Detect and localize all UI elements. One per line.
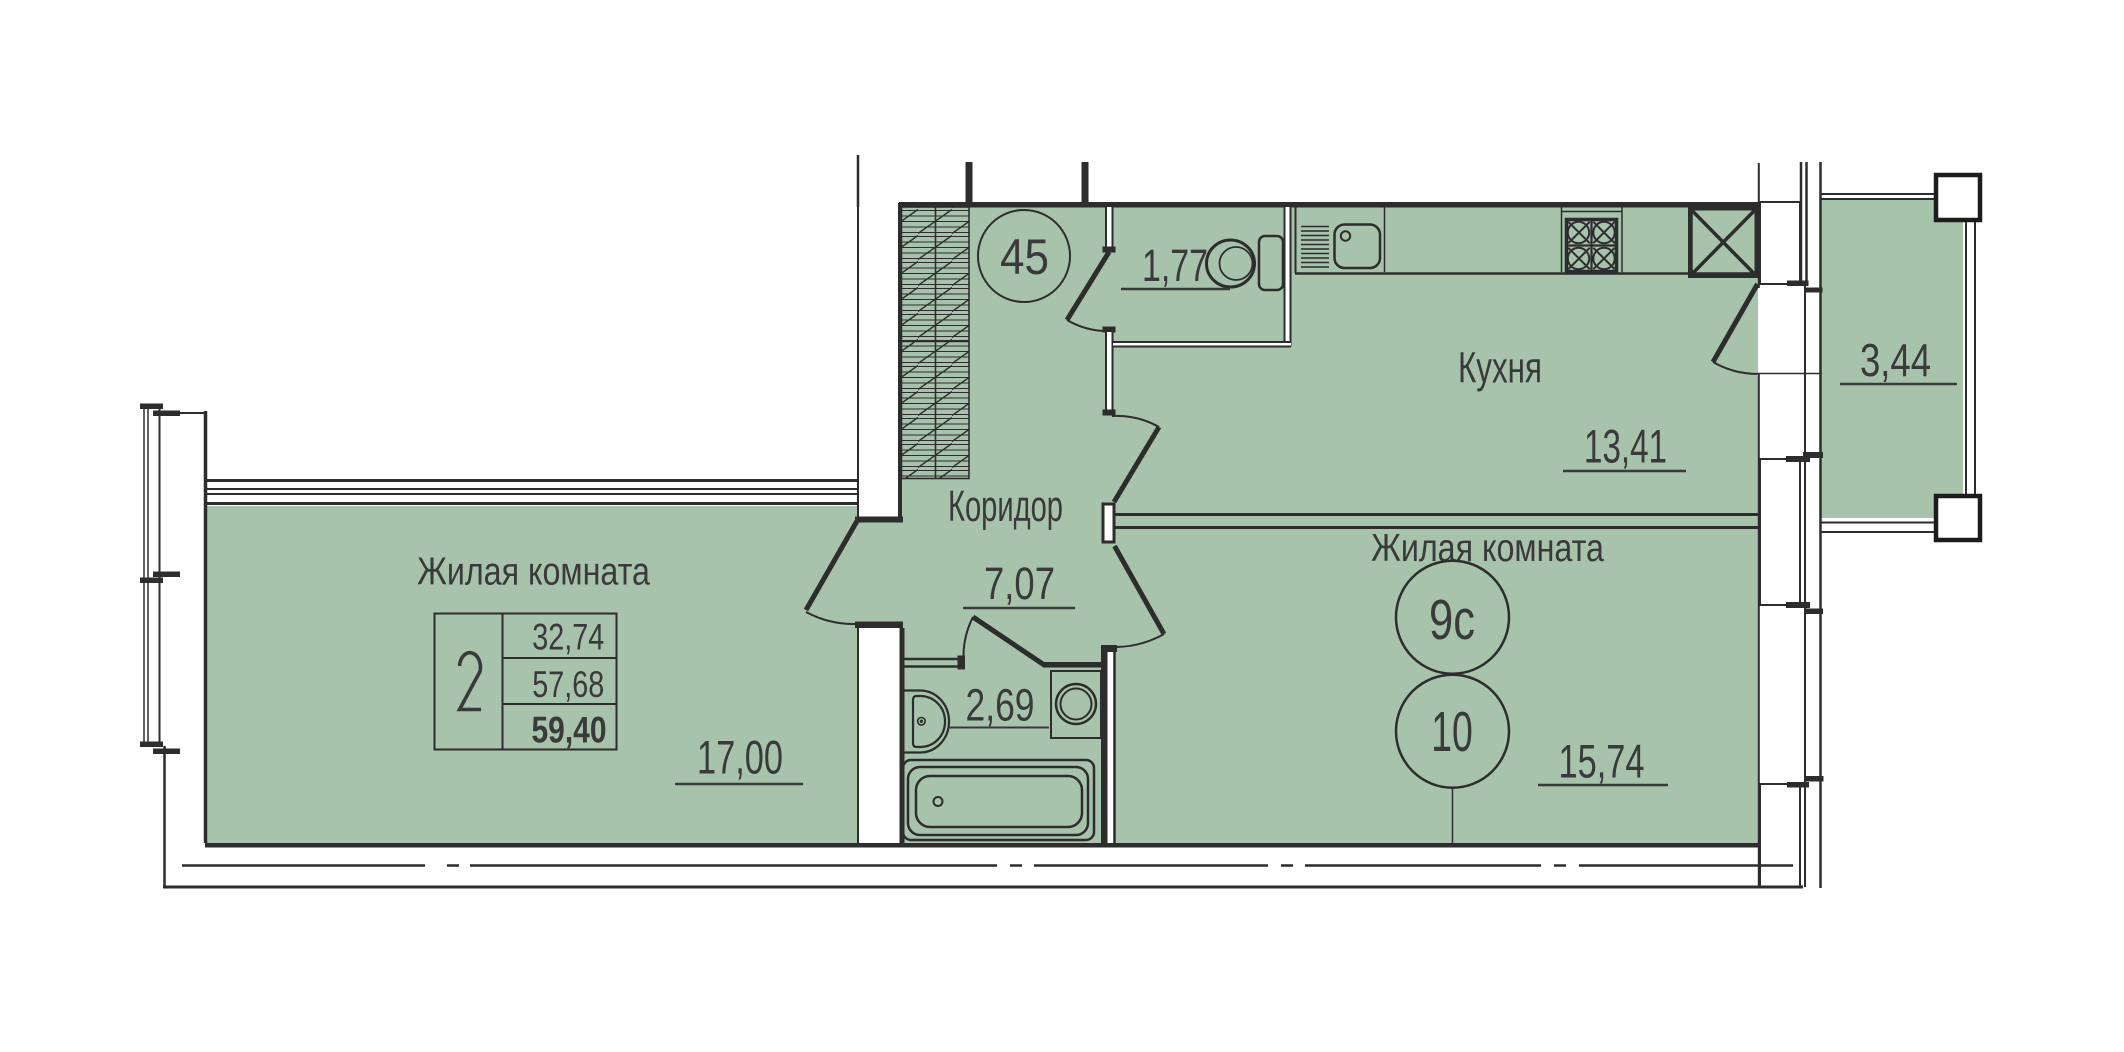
svg-text:2,69: 2,69 (966, 679, 1035, 730)
svg-text:45: 45 (1000, 228, 1049, 284)
svg-text:57,68: 57,68 (532, 665, 604, 706)
svg-text:3,44: 3,44 (1860, 334, 1931, 386)
svg-text:Жилая комната: Жилая комната (1371, 526, 1604, 570)
svg-text:32,74: 32,74 (532, 617, 604, 658)
svg-text:13,41: 13,41 (1584, 420, 1667, 473)
svg-text:7,07: 7,07 (984, 558, 1055, 609)
svg-text:17,00: 17,00 (697, 731, 783, 784)
svg-text:Кухня: Кухня (1458, 343, 1542, 393)
svg-text:10: 10 (1431, 700, 1473, 764)
svg-text:9с: 9с (1429, 587, 1475, 651)
svg-text:15,74: 15,74 (1559, 735, 1645, 788)
svg-text:1,77: 1,77 (1142, 241, 1208, 291)
svg-text:59,40: 59,40 (532, 710, 607, 751)
svg-text:Коридор: Коридор (948, 481, 1063, 531)
svg-text:Жилая комната: Жилая комната (417, 550, 650, 594)
